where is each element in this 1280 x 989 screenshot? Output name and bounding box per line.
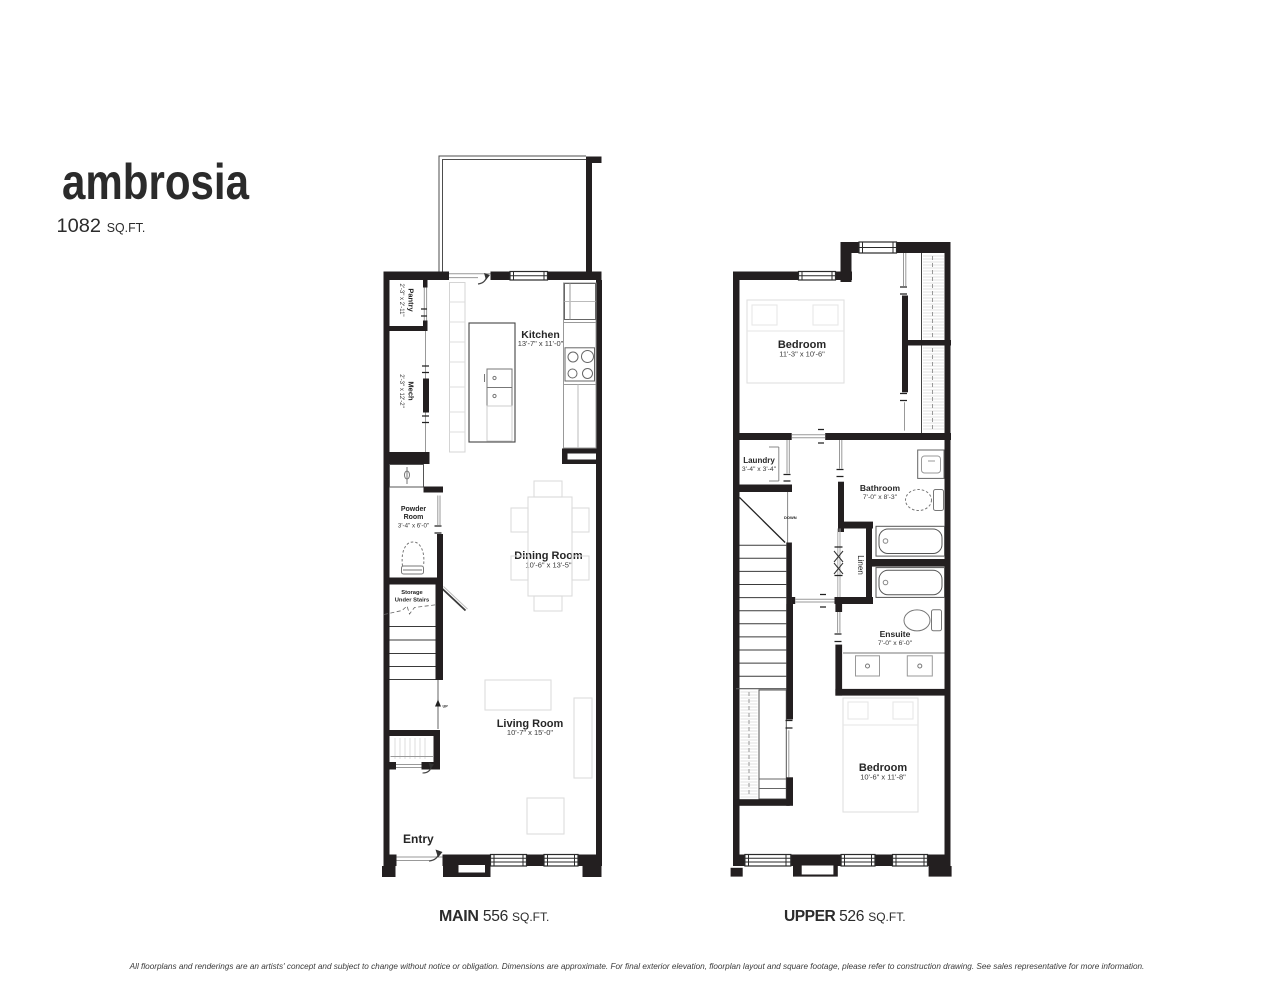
svg-text:UP: UP	[443, 705, 449, 709]
svg-text:2'-3" x 12'-2": 2'-3" x 12'-2"	[398, 374, 404, 408]
svg-text:Under Stairs: Under Stairs	[395, 598, 429, 604]
svg-text:3'-4" x 6'-0": 3'-4" x 6'-0"	[398, 523, 429, 530]
svg-text:1082: 1082	[57, 215, 102, 237]
svg-text:All floorplans and renderings: All floorplans and renderings are an art…	[129, 962, 1145, 971]
svg-text:Ensuite: Ensuite	[880, 629, 911, 639]
svg-text:Pantry: Pantry	[407, 288, 416, 312]
svg-text:3'-4" x 3'-4": 3'-4" x 3'-4"	[742, 466, 777, 473]
svg-text:2'-3" x 2'-11": 2'-3" x 2'-11"	[398, 283, 404, 316]
svg-text:SQ.FT.: SQ.FT.	[107, 220, 146, 235]
svg-text:Powder: Powder	[401, 506, 427, 513]
svg-text:MAIN 556 SQ.FT.: MAIN 556 SQ.FT.	[439, 908, 549, 925]
svg-text:Mech: Mech	[407, 381, 416, 401]
svg-text:7'-0" x 8'-3": 7'-0" x 8'-3"	[863, 494, 898, 501]
svg-text:Storage: Storage	[401, 590, 423, 596]
svg-text:DOWN: DOWN	[784, 515, 797, 520]
svg-text:10'-7" x 15'-0": 10'-7" x 15'-0"	[507, 728, 553, 737]
svg-text:13'-7" x 11'-0": 13'-7" x 11'-0"	[518, 339, 564, 348]
svg-text:Room: Room	[404, 514, 424, 521]
svg-text:11'-3" x 10'-6": 11'-3" x 10'-6"	[779, 350, 825, 359]
svg-text:Laundry: Laundry	[743, 456, 775, 465]
svg-text:10'-6" x 13'-5": 10'-6" x 13'-5"	[525, 561, 571, 570]
svg-text:Linen: Linen	[856, 555, 865, 575]
svg-text:UPPER 526 SQ.FT.: UPPER 526 SQ.FT.	[784, 908, 906, 925]
svg-text:ambrosia: ambrosia	[62, 154, 250, 210]
svg-text:Bathroom: Bathroom	[860, 483, 901, 493]
svg-text:Entry: Entry	[403, 832, 434, 846]
svg-text:10'-6" x 11'-8": 10'-6" x 11'-8"	[860, 773, 906, 782]
svg-text:7'-0" x 6'-0": 7'-0" x 6'-0"	[878, 640, 913, 647]
